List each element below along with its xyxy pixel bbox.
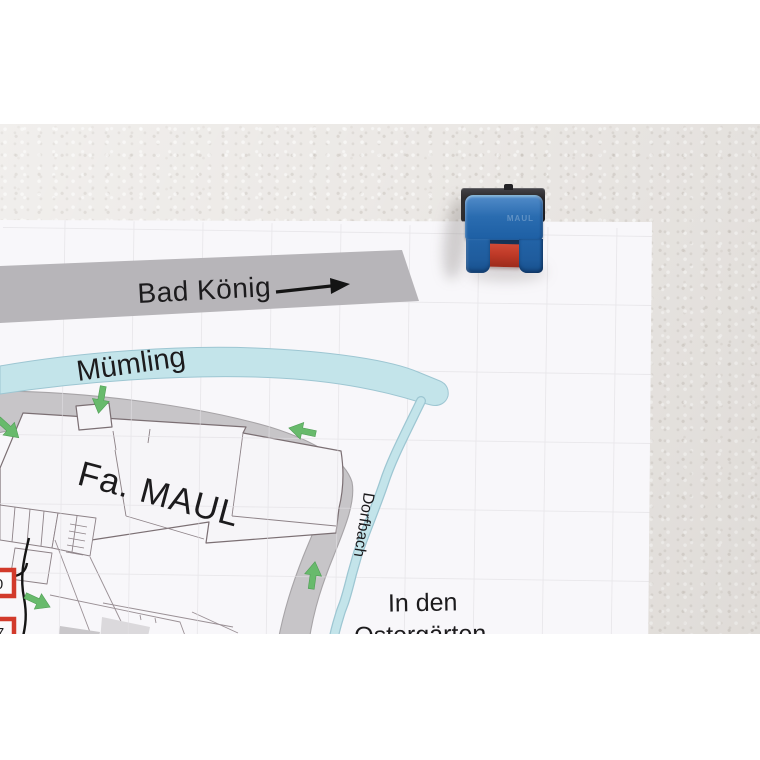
river-label: Mümling [75,341,188,388]
photo-of-map-on-wall: 0 7 Bad König Mümling [0,0,760,760]
letterbox-bottom [0,634,760,760]
building-annex [76,403,112,430]
clip-leg-left [466,239,490,273]
letterbox-top [0,0,760,124]
paper-clip-body: MAUL [465,195,543,240]
clip-brand-emboss: MAUL [507,214,534,223]
route-marker-label: 0 [0,576,3,593]
site-map: 0 7 Bad König Mümling [0,220,653,662]
stream-label: Dorfbach [350,491,377,558]
clip-leg-right [519,239,543,273]
clip-red-insert [487,244,522,268]
street-label-line1: In den [388,588,458,617]
route-marker: 0 [0,570,14,596]
clip-plate-tab [504,184,513,190]
map-sheet: 0 7 Bad König Mümling [0,220,653,662]
